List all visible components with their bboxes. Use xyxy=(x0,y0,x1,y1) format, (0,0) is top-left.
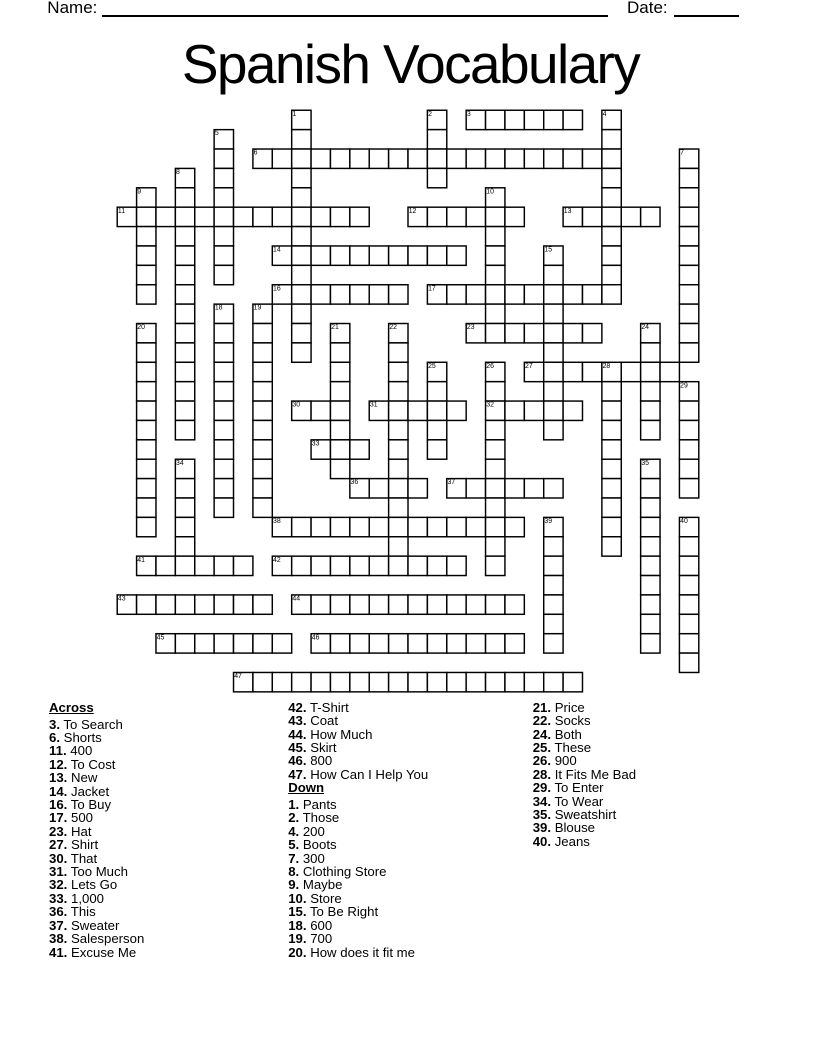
svg-text:44: 44 xyxy=(292,596,300,603)
svg-text:4: 4 xyxy=(603,111,607,118)
svg-text:28: 28 xyxy=(603,363,611,370)
svg-text:25: 25 xyxy=(428,363,436,370)
svg-text:20: 20 xyxy=(137,324,145,331)
svg-text:1: 1 xyxy=(292,111,296,118)
svg-text:42: 42 xyxy=(273,557,281,564)
svg-text:18: 18 xyxy=(215,305,223,312)
svg-text:13: 13 xyxy=(564,208,572,215)
svg-text:22: 22 xyxy=(389,324,397,331)
svg-text:40: 40 xyxy=(680,518,688,525)
svg-text:26: 26 xyxy=(486,363,494,370)
svg-text:8: 8 xyxy=(176,169,180,176)
svg-text:11: 11 xyxy=(118,208,125,215)
svg-text:31: 31 xyxy=(370,402,378,409)
svg-text:32: 32 xyxy=(486,402,494,409)
svg-text:17: 17 xyxy=(428,285,436,292)
svg-text:7: 7 xyxy=(680,150,684,157)
svg-text:21: 21 xyxy=(331,324,339,331)
svg-text:43: 43 xyxy=(118,596,126,603)
svg-text:47: 47 xyxy=(234,673,242,680)
svg-text:33: 33 xyxy=(312,440,320,447)
svg-text:10: 10 xyxy=(486,188,494,195)
svg-text:46: 46 xyxy=(312,634,320,641)
svg-text:3: 3 xyxy=(467,111,471,118)
svg-text:30: 30 xyxy=(292,402,300,409)
svg-text:9: 9 xyxy=(137,188,141,195)
svg-text:24: 24 xyxy=(641,324,649,331)
svg-text:2: 2 xyxy=(428,111,432,118)
svg-text:19: 19 xyxy=(254,305,262,312)
svg-text:38: 38 xyxy=(273,518,281,525)
svg-text:37: 37 xyxy=(447,479,455,486)
svg-text:39: 39 xyxy=(544,518,552,525)
svg-text:16: 16 xyxy=(273,285,281,292)
svg-text:34: 34 xyxy=(176,460,184,467)
svg-text:23: 23 xyxy=(467,324,475,331)
svg-text:29: 29 xyxy=(680,382,688,389)
svg-text:45: 45 xyxy=(157,634,165,641)
svg-text:14: 14 xyxy=(273,247,281,254)
svg-text:36: 36 xyxy=(351,479,359,486)
svg-text:12: 12 xyxy=(409,208,417,215)
svg-text:6: 6 xyxy=(254,150,258,157)
svg-text:35: 35 xyxy=(641,460,649,467)
svg-text:27: 27 xyxy=(525,363,533,370)
svg-text:15: 15 xyxy=(544,247,552,254)
svg-text:5: 5 xyxy=(215,130,219,137)
svg-text:41: 41 xyxy=(137,557,145,564)
